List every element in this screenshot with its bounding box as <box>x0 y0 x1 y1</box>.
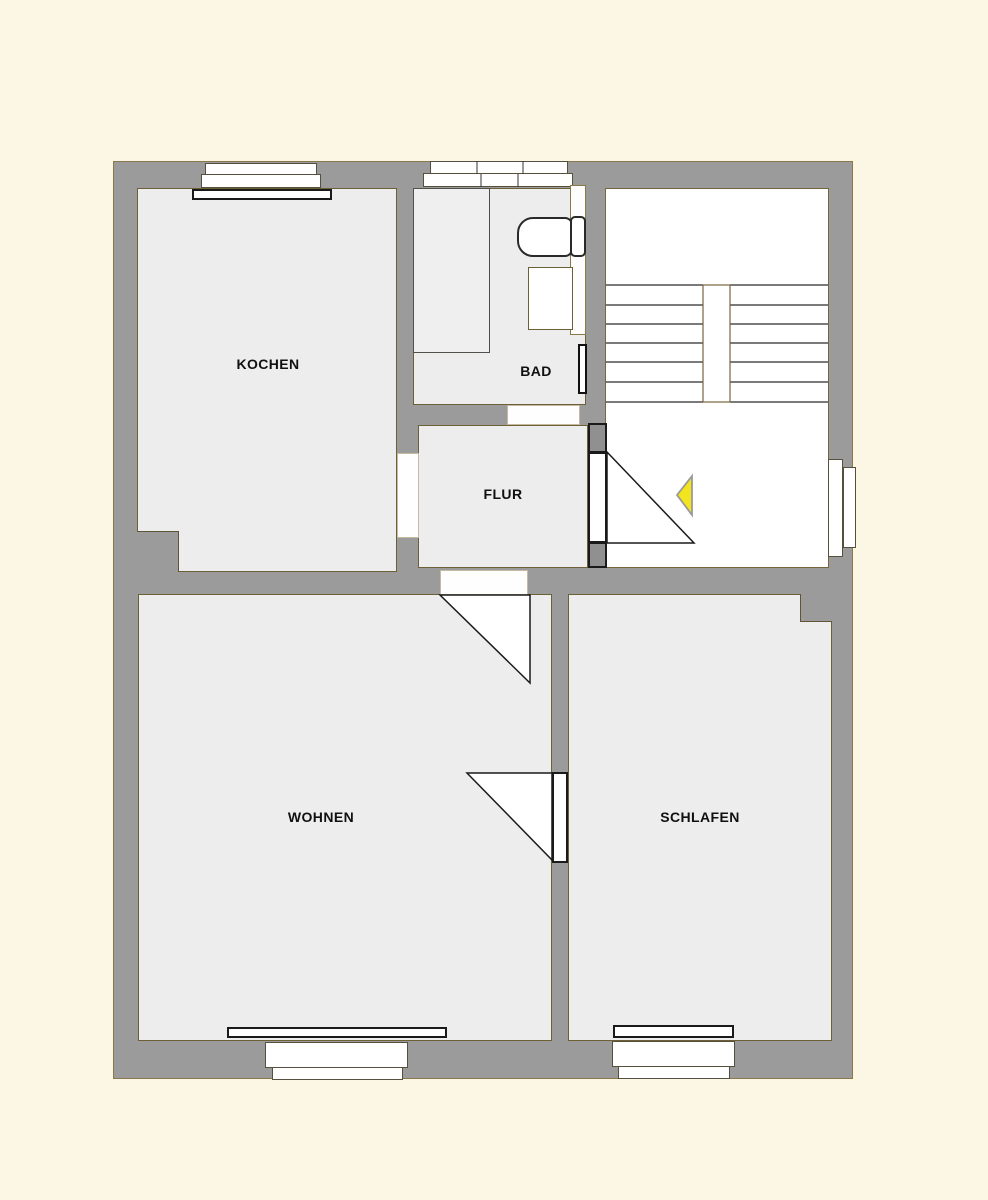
entrance-arrow-icon <box>677 476 692 515</box>
room-label-wohnen: WOHNEN <box>288 809 354 825</box>
bad-window-mullions <box>477 161 523 187</box>
plan-linework <box>0 0 988 1200</box>
stairs-right-flight <box>730 285 828 402</box>
room-label-bad: BAD <box>520 363 552 379</box>
room-label-schlafen: SCHLAFEN <box>660 809 739 825</box>
stairs-left-flight <box>606 285 703 402</box>
stairs-center-divider <box>703 285 730 402</box>
room-label-kochen: KOCHEN <box>236 356 299 372</box>
wohnen-schlafen-door-swing <box>467 773 552 860</box>
flur-wohnen-door-swing <box>440 595 530 683</box>
room-label-flur: FLUR <box>484 486 523 502</box>
